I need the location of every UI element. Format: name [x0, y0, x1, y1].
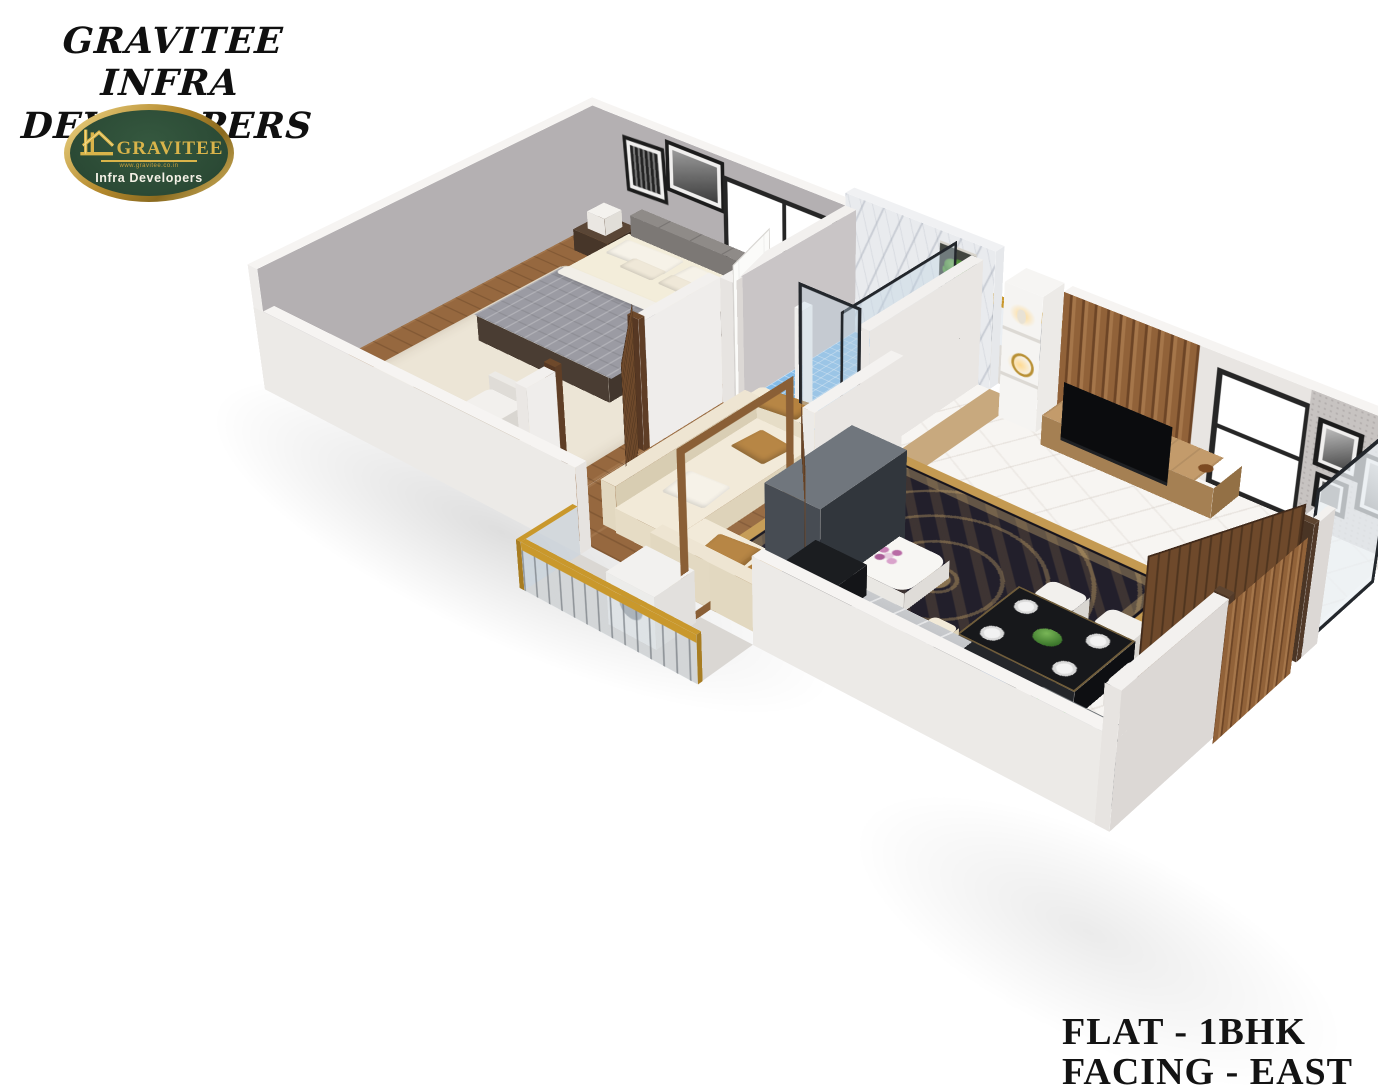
dinner-plate-4: [1047, 658, 1081, 679]
picture-art: [630, 145, 661, 195]
logo-name: GRAVITEE: [117, 139, 224, 158]
bedroom-back-wall: [583, 97, 854, 205]
console-decor: [1195, 462, 1216, 474]
bedroom-picture-frame-1: [622, 134, 668, 205]
floor-plan-scene: [265, 214, 1378, 832]
window-mullion: [1217, 423, 1299, 461]
logo-badge: GRAVITEE www.gravitee.co.in Infra Develo…: [70, 110, 228, 196]
company-logo: GRAVITEE www.gravitee.co.in Infra Develo…: [64, 104, 234, 202]
dining-centerpiece: [1027, 625, 1068, 650]
dinner-plate-1: [1009, 597, 1042, 617]
dinner-plate-3: [975, 623, 1009, 644]
logo-tagline: Infra Developers: [95, 171, 203, 185]
brand-title-line1: GRAVITEE INFRA: [1, 20, 343, 105]
picture-art: [672, 150, 717, 203]
logo-website: www.gravitee.co.in: [119, 162, 178, 170]
niche-face: [998, 282, 1043, 433]
building-icon: [75, 124, 115, 158]
logo-row: GRAVITEE: [75, 124, 224, 158]
niche-decor-ring: [1011, 350, 1034, 381]
niche-vase: [1017, 308, 1026, 325]
display-niche: [1005, 268, 1065, 297]
page: GRAVITEE INFRA DEVELOPERS GRAVIT: [0, 0, 1378, 1092]
bathroom-back-wall: [845, 188, 1004, 252]
bedroom-picture-frame-2: [665, 139, 725, 214]
floorplan-stage: [265, 214, 1378, 832]
dinner-plate-2: [1081, 631, 1115, 652]
